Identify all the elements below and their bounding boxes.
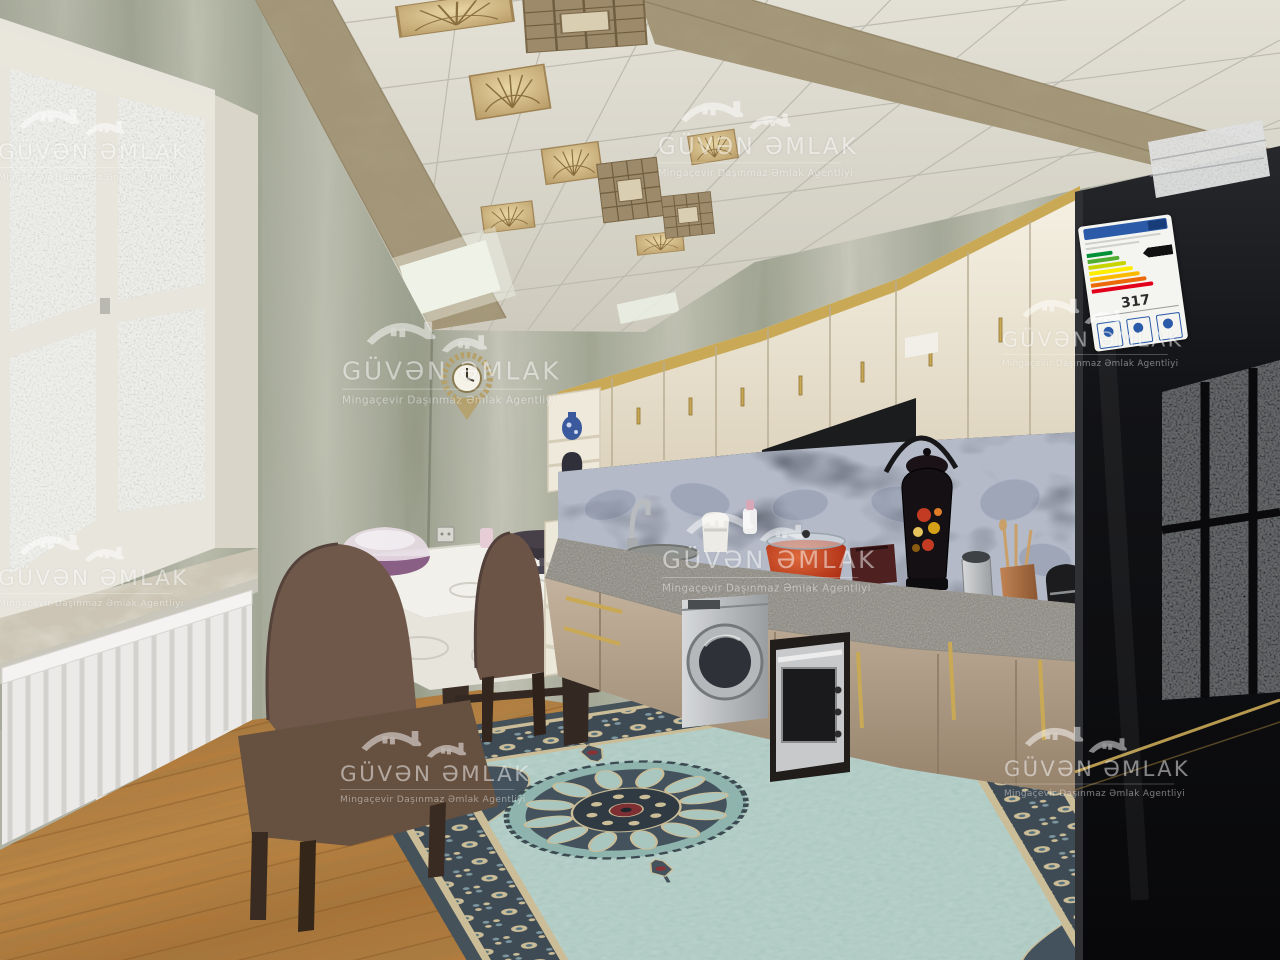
oven-glass-door (782, 668, 836, 742)
chair-leg (250, 832, 268, 920)
mini-oven (770, 632, 850, 782)
window-reveal (215, 95, 258, 548)
energy-class-bars (1087, 242, 1176, 293)
chair-leg (532, 672, 546, 736)
kitchen-scene (0, 0, 1280, 960)
frosted-window-behind-fridge (1162, 360, 1280, 700)
wall-socket (437, 527, 454, 542)
washing-machine (682, 594, 768, 728)
fridge-edge-highlight (1075, 190, 1083, 960)
window-handle (100, 298, 110, 314)
white-container (702, 512, 729, 552)
chair-leg (482, 676, 494, 742)
chair-leg (428, 802, 446, 878)
energy-class-arrow (1142, 244, 1173, 258)
listing-photo-kitchen: 317 GÜVƏN ƏMLAK Mingaçevir Daşınmaz Əmla… (0, 0, 1280, 960)
toaster (850, 544, 897, 586)
chair-leg (298, 840, 316, 932)
fridge-energy-label: 317 (1078, 214, 1189, 352)
washer-control-panel (688, 600, 720, 609)
